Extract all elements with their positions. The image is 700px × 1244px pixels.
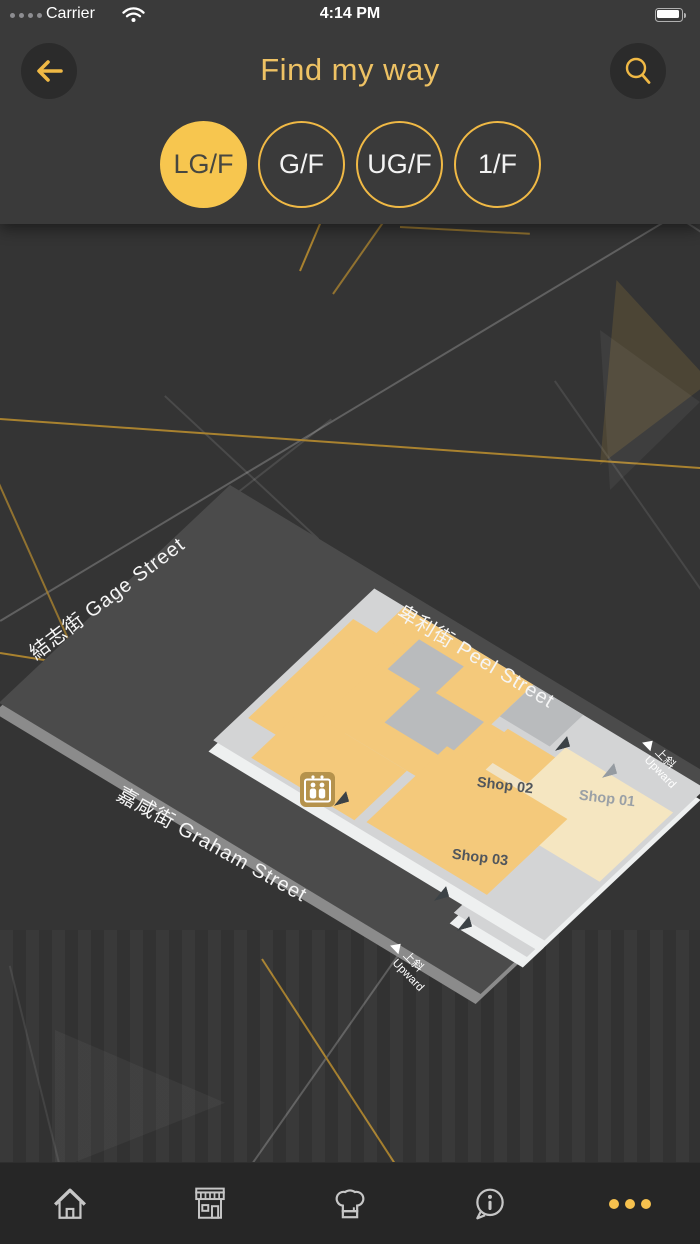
tab-more[interactable] xyxy=(560,1163,700,1244)
floor-button-lgf[interactable]: LG/F xyxy=(160,121,247,208)
tab-dining[interactable] xyxy=(280,1163,420,1244)
tab-info[interactable] xyxy=(420,1163,560,1244)
tab-home[interactable] xyxy=(0,1163,140,1244)
floor-button-gf[interactable]: G/F xyxy=(258,121,345,208)
floor-selector: LG/F G/F UG/F 1/F xyxy=(160,121,541,208)
battery-icon xyxy=(655,8,688,22)
more-dots-icon xyxy=(606,1196,654,1212)
page-title: Find my way xyxy=(0,52,700,88)
stripe-texture xyxy=(0,930,700,1162)
floor-button-1f[interactable]: 1/F xyxy=(454,121,541,208)
info-icon xyxy=(468,1182,512,1226)
chef-hat-icon xyxy=(328,1182,372,1226)
search-button[interactable] xyxy=(610,43,666,99)
magnifier-icon xyxy=(622,55,654,87)
floor-button-ugf[interactable]: UG/F xyxy=(356,121,443,208)
home-icon xyxy=(48,1182,92,1226)
tab-bar xyxy=(0,1162,700,1244)
header: Find my way LG/F G/F UG/F 1/F xyxy=(0,0,700,224)
tab-shops[interactable] xyxy=(140,1163,280,1244)
storefront-icon xyxy=(188,1182,232,1226)
clock: 4:14 PM xyxy=(0,5,700,23)
status-bar: Carrier 4:14 PM xyxy=(0,0,700,30)
app-screen: 結志街 Gage Street 卑利街 Peel Street 嘉咸街 Grah… xyxy=(0,0,700,1244)
